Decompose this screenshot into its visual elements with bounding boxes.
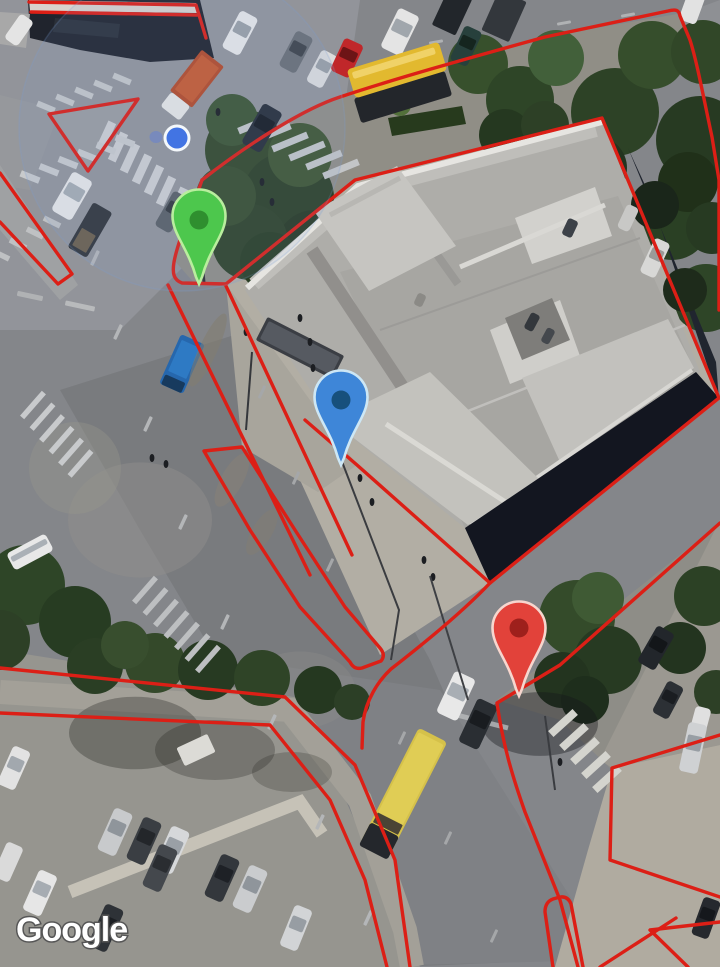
svg-text:Google: Google [16, 911, 127, 949]
